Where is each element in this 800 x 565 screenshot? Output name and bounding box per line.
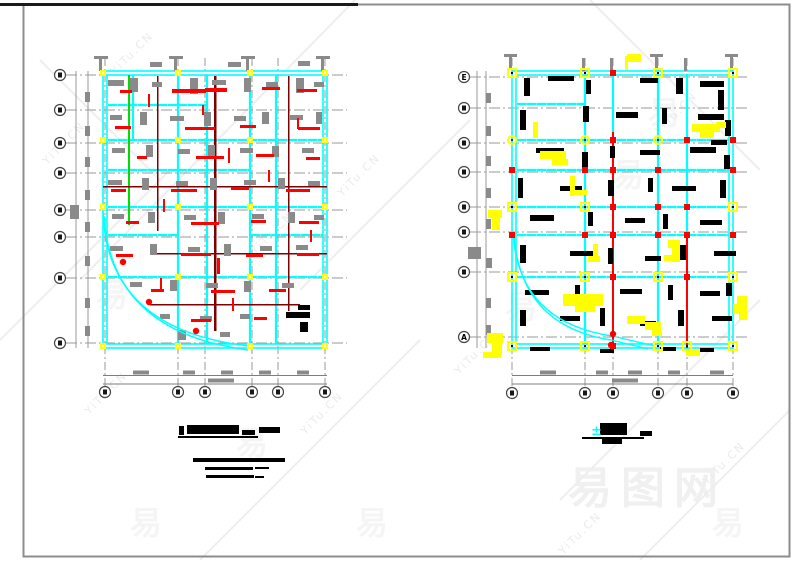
drawing-frame	[0, 3, 790, 557]
left-plan	[55, 56, 348, 398]
svg-text:E: E	[461, 73, 466, 82]
drawing-canvas: EA±	[0, 0, 800, 565]
right-plan: EA	[459, 54, 751, 399]
cad-viewer[interactable]: 易图网 易易易易易易易易YiTu.CNYiTu.CNYiTu.CNYiTu.CN…	[0, 0, 800, 565]
right-plan-dimensions	[512, 371, 733, 385]
plan-titles: ±	[178, 423, 652, 478]
right-plan-title-prefix: ±	[591, 424, 602, 439]
svg-text:A: A	[461, 333, 467, 342]
left-plan-annotations	[70, 56, 330, 350]
left-plan-dimensions	[103, 371, 327, 385]
